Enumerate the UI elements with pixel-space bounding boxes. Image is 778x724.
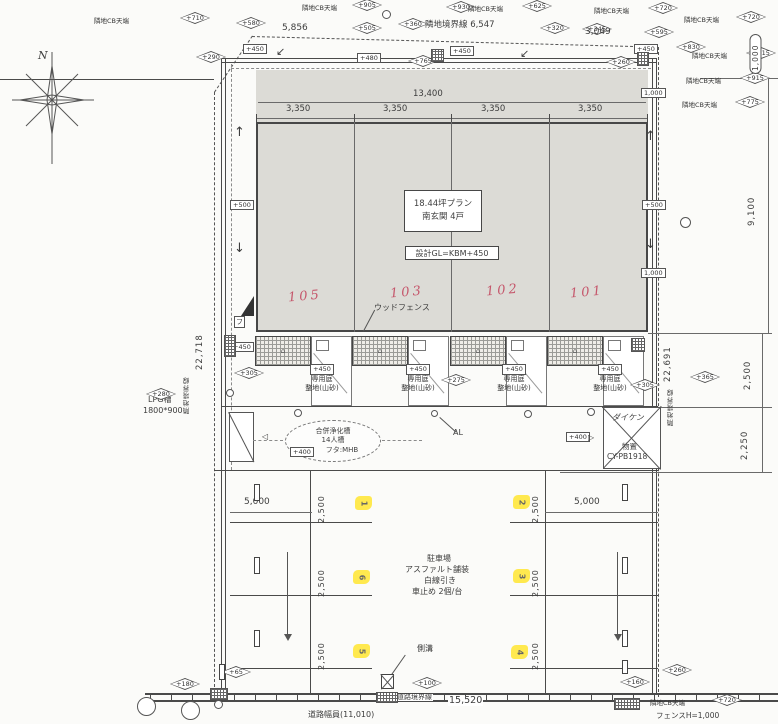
car-stop bbox=[622, 630, 628, 647]
shed-brand-label: ダイケン bbox=[612, 414, 644, 422]
elevation-box: +400 bbox=[566, 432, 590, 442]
garden-label-line2: 整地(山砂) bbox=[588, 384, 632, 393]
fence-line bbox=[221, 62, 656, 63]
cb-text: 隣地CB天端 bbox=[684, 16, 719, 24]
cb-elevation-label: 隣地CB天端+625 bbox=[468, 3, 503, 13]
private-garden-label: +450専用庭整地(山砂) bbox=[492, 364, 536, 394]
cb-elevation-label: 隣地CB天端+710 bbox=[94, 15, 129, 25]
cb-text: 隣地CB天端 bbox=[468, 5, 503, 13]
ext-line bbox=[560, 472, 772, 473]
utility-circle bbox=[214, 700, 223, 709]
elevation-box: +450 bbox=[450, 46, 474, 56]
private-garden-label: +450専用庭整地(山砂) bbox=[588, 364, 632, 394]
level-diamond: +360 bbox=[398, 18, 428, 30]
dim-text: ↙ bbox=[520, 48, 529, 59]
cb-text: 隣地CB天端 bbox=[650, 699, 685, 707]
dim-text: ◁ bbox=[262, 433, 268, 441]
dim-text-vertical: 2,500 bbox=[318, 477, 326, 523]
drain-basin-hatch bbox=[376, 692, 398, 703]
dim-text-vertical: 9,100 bbox=[748, 162, 757, 226]
dim-text: 3,049 bbox=[585, 28, 611, 37]
dim-text-vertical: 隣地境界線 bbox=[184, 358, 191, 414]
stall-line bbox=[230, 595, 372, 596]
utility-circle bbox=[680, 217, 691, 228]
dim-tick bbox=[354, 114, 355, 122]
unit-number-handwritten: 102 bbox=[485, 282, 520, 300]
elevation-box: +400 bbox=[290, 447, 314, 457]
dim-text: N bbox=[38, 50, 48, 61]
car-stop bbox=[254, 484, 260, 501]
cb-elevation-label: 隣地CB天端+915 bbox=[692, 50, 727, 60]
boundary-dashed-right bbox=[658, 47, 659, 697]
fence-line bbox=[221, 58, 222, 693]
drive-direction-arrow bbox=[287, 552, 288, 638]
plan-title-line1: 18.44坪プラン bbox=[414, 198, 472, 211]
cb-text: 隣地CB天端 bbox=[692, 52, 727, 60]
elevation-box: +500 bbox=[230, 200, 254, 210]
parking-stall-highlight: 4 bbox=[511, 645, 528, 659]
utility-circle bbox=[431, 410, 438, 417]
dim-text-vertical: 2,500 bbox=[532, 624, 540, 670]
level-diamond: +290 bbox=[196, 51, 226, 63]
utility-circle bbox=[587, 408, 595, 416]
boundary-dashed-left bbox=[214, 92, 215, 697]
parking-stall-number: 2 bbox=[517, 499, 526, 505]
parking-note-2: アスファルト舗装 bbox=[405, 566, 469, 574]
drain-basin-hatch bbox=[631, 338, 645, 352]
terrace-deck: ⌂ bbox=[450, 336, 506, 366]
dim-line-right bbox=[762, 333, 763, 472]
parking-stall-highlight: 6 bbox=[353, 570, 370, 584]
unit-partition bbox=[354, 122, 355, 332]
fu-label: フ bbox=[236, 318, 243, 326]
level-diamond: +100 bbox=[412, 677, 442, 689]
dim-text: 5,000 bbox=[574, 498, 600, 507]
cb-text: 隣地CB天端 bbox=[682, 101, 717, 109]
garden-level-box: +450 bbox=[406, 364, 430, 375]
cb-elevation-label: 隣地CB天端+720 bbox=[594, 5, 629, 15]
level-diamond: +280 bbox=[146, 388, 176, 400]
drain-basin-hatch bbox=[431, 49, 444, 62]
drain-basin-hatch bbox=[210, 688, 228, 700]
garden-label-line2: 整地(山砂) bbox=[492, 384, 536, 393]
gate-triangle bbox=[241, 296, 254, 316]
terrace-deck: ⌂ bbox=[547, 336, 603, 366]
level-diamond: +65 bbox=[221, 666, 251, 678]
dim-text: 3,350 bbox=[286, 105, 310, 114]
site-plan-drawing: 18.44坪プラン 南玄関 4戸 設計GL=KBM+450 ウッドフェンス ⌂ … bbox=[0, 0, 778, 724]
dim-text-vertical: 22,691 bbox=[664, 312, 673, 382]
garden-level-box: +450 bbox=[598, 364, 622, 375]
road-dim: 15,520 bbox=[448, 696, 483, 706]
fence-height-note: フェンスH=1,000 bbox=[656, 712, 719, 720]
dim-line bbox=[545, 512, 658, 513]
parking-note-4: 車止め 2個/台 bbox=[412, 588, 462, 596]
dim-line bbox=[230, 512, 312, 513]
level-diamond: +710 bbox=[180, 12, 210, 24]
elevation-box: +450 bbox=[243, 44, 267, 54]
dim-text: ↙ bbox=[276, 46, 285, 57]
drain-basin-hatch bbox=[637, 52, 649, 66]
utility-dash bbox=[382, 440, 422, 441]
dim-line bbox=[258, 102, 646, 103]
dim-text: 3,350 bbox=[383, 105, 407, 114]
level-diamond: +365 bbox=[690, 371, 720, 383]
level-diamond: +720 bbox=[648, 2, 678, 14]
parking-north-line bbox=[214, 470, 658, 471]
unit-number-handwritten: 105 bbox=[287, 288, 322, 306]
utility-circle bbox=[382, 10, 391, 19]
dim-text-vertical: 1,000 bbox=[750, 34, 762, 74]
lpg-size-label: 1800*900 bbox=[143, 407, 183, 415]
utility-circle bbox=[137, 697, 156, 716]
drive-direction-arrow bbox=[617, 552, 618, 638]
road-boundary-label: 道路境界線 bbox=[396, 694, 433, 701]
gutter-label: 側溝 bbox=[417, 645, 433, 653]
dim-text-vertical: 隣地境界線 bbox=[668, 374, 675, 426]
setback-line bbox=[231, 68, 651, 69]
level-diamond: +180 bbox=[170, 678, 200, 690]
level-diamond: +260 bbox=[606, 56, 636, 68]
gl-note-box: 設計GL=KBM+450 bbox=[405, 246, 499, 260]
fu-box: フ bbox=[234, 316, 245, 328]
parking-stall-number: 5 bbox=[357, 648, 366, 654]
dim-text-vertical: 2,250 bbox=[741, 408, 750, 460]
car-stop bbox=[622, 557, 628, 574]
elevation-box: +500 bbox=[642, 200, 666, 210]
plan-title-box: 18.44坪プラン 南玄関 4戸 bbox=[404, 190, 482, 232]
elevation-box: 1,000 bbox=[641, 88, 666, 98]
level-diamond: +260 bbox=[662, 664, 692, 676]
level-diamond: +320 bbox=[540, 22, 570, 34]
gl-note: 設計GL=KBM+450 bbox=[416, 248, 489, 259]
drain-basin-hatch bbox=[224, 335, 236, 357]
utility-circle bbox=[226, 389, 234, 397]
dim-text-vertical: 22,718 bbox=[196, 300, 205, 370]
car-stop bbox=[622, 484, 628, 501]
level-diamond: +305 bbox=[234, 367, 264, 379]
dim-text: 隣地境界線 6,547 bbox=[425, 21, 495, 30]
garden-label-line2: 整地(山砂) bbox=[300, 384, 344, 393]
utility-circle bbox=[524, 410, 532, 418]
cb-text: 隣地CB天端 bbox=[686, 77, 721, 85]
dim-text: 3,350 bbox=[481, 105, 505, 114]
dim-text-vertical: 2,500 bbox=[744, 338, 753, 390]
level-diamond: +580 bbox=[236, 17, 266, 29]
shed-model-label: CY-PB1918 bbox=[607, 453, 647, 461]
cb-elevation-label: 隣地CB天端+905 bbox=[302, 2, 337, 12]
dim-text: 3,350 bbox=[578, 105, 602, 114]
level-diamond: +775 bbox=[735, 96, 765, 108]
parking-note-1: 駐車場 bbox=[427, 555, 451, 563]
fence-line bbox=[656, 58, 657, 693]
parking-stall-highlight: 2 bbox=[513, 495, 530, 509]
level-diamond: +160 bbox=[620, 676, 650, 688]
parking-stall-number: 6 bbox=[357, 574, 366, 580]
fence-line bbox=[652, 58, 653, 693]
level-diamond: +305 bbox=[630, 379, 660, 391]
dim-tick bbox=[451, 114, 452, 122]
garden-level-box: +450 bbox=[310, 364, 334, 375]
elevation-box: +480 bbox=[357, 53, 381, 63]
stall-line bbox=[230, 522, 372, 523]
garden-level-box: +450 bbox=[502, 364, 526, 375]
parking-stall-highlight: 1 bbox=[355, 496, 372, 510]
cb-elevation-label: 隣地CB天端+720 bbox=[650, 697, 685, 707]
car-stop bbox=[254, 557, 260, 574]
car-stop bbox=[622, 660, 628, 674]
drain-basin-hatch bbox=[614, 698, 640, 710]
stall-line bbox=[230, 668, 372, 669]
car-stop bbox=[254, 630, 260, 647]
level-diamond: +595 bbox=[644, 26, 674, 38]
utility-circle bbox=[294, 409, 302, 417]
level-diamond: +625 bbox=[522, 0, 552, 12]
garden-label-line2: 整地(山砂) bbox=[396, 384, 440, 393]
unit-number-handwritten: 101 bbox=[569, 284, 604, 302]
parking-stall-highlight: 5 bbox=[353, 644, 370, 658]
dim-text: ↑ bbox=[645, 130, 656, 143]
level-diamond: +905 bbox=[352, 0, 382, 11]
shed-name-label: 物置 bbox=[622, 443, 637, 451]
parking-stall-number: 1 bbox=[359, 500, 368, 506]
dim-text: 5,856 bbox=[282, 24, 308, 33]
elevation-box: 1,000 bbox=[641, 268, 666, 278]
cb-elevation-label: 隣地CB天端+775 bbox=[682, 99, 717, 109]
wood-fence-label: ウッドフェンス bbox=[374, 304, 430, 312]
septic-line2: 14人槽 bbox=[322, 436, 345, 445]
level-diamond: +720 bbox=[736, 11, 766, 23]
parking-note-3: 白線引き bbox=[424, 577, 456, 585]
dim-tick bbox=[647, 114, 648, 122]
dim-text-vertical: 2,500 bbox=[318, 551, 326, 597]
unit-partition bbox=[549, 122, 550, 332]
plan-title-line2: 南玄関 4戸 bbox=[422, 211, 464, 224]
level-diamond: +720 bbox=[712, 694, 742, 706]
cb-elevation-label: 隣地CB天端+720 bbox=[684, 14, 719, 24]
parking-stall-number: 4 bbox=[515, 649, 524, 655]
dim-text: ▷ bbox=[588, 434, 594, 442]
parking-stall-number: 3 bbox=[517, 573, 526, 579]
private-garden-label: +450専用庭整地(山砂) bbox=[396, 364, 440, 394]
cb-elevation-label: 隣地CB天端+915 bbox=[686, 75, 721, 85]
dim-text-vertical: 2,500 bbox=[532, 477, 540, 523]
level-diamond: +275 bbox=[441, 374, 471, 386]
dim-tick bbox=[549, 114, 550, 122]
dim-text: ↑ bbox=[234, 126, 245, 139]
level-diamond: +505 bbox=[352, 22, 382, 34]
parking-divider bbox=[545, 470, 546, 693]
utility-circle bbox=[181, 701, 200, 720]
setback-line bbox=[231, 64, 232, 470]
dim-text: ↓ bbox=[234, 242, 245, 255]
al-leader bbox=[439, 417, 456, 432]
north-compass-icon bbox=[10, 48, 100, 168]
dim-tick bbox=[256, 114, 257, 122]
unit-number-handwritten: 103 bbox=[389, 284, 424, 302]
road-width-note: 道路幅員(11,010) bbox=[308, 711, 374, 719]
parking-stall-highlight: 3 bbox=[513, 569, 530, 583]
dim-text-vertical: 2,500 bbox=[532, 551, 540, 597]
septic-line3: フタ:MHB bbox=[326, 446, 358, 455]
garden-south-line bbox=[221, 406, 658, 407]
car-stop bbox=[219, 664, 225, 680]
dim-line bbox=[256, 118, 648, 119]
cb-text: 隣地CB天端 bbox=[594, 7, 629, 15]
dim-line-9100 bbox=[768, 78, 769, 333]
dim-text: 13,400 bbox=[413, 90, 443, 99]
terrace-deck: ⌂ bbox=[352, 336, 408, 366]
dim-text: ↓ bbox=[645, 238, 656, 251]
cb-text: 隣地CB天端 bbox=[94, 17, 129, 25]
dim-text-vertical: 2,500 bbox=[318, 624, 326, 670]
fence-line bbox=[225, 58, 226, 693]
parking-divider bbox=[310, 470, 311, 693]
cb-text: 隣地CB天端 bbox=[302, 4, 337, 12]
private-garden-label: +450専用庭整地(山砂) bbox=[300, 364, 344, 394]
terrace-deck: ⌂ bbox=[255, 336, 311, 366]
